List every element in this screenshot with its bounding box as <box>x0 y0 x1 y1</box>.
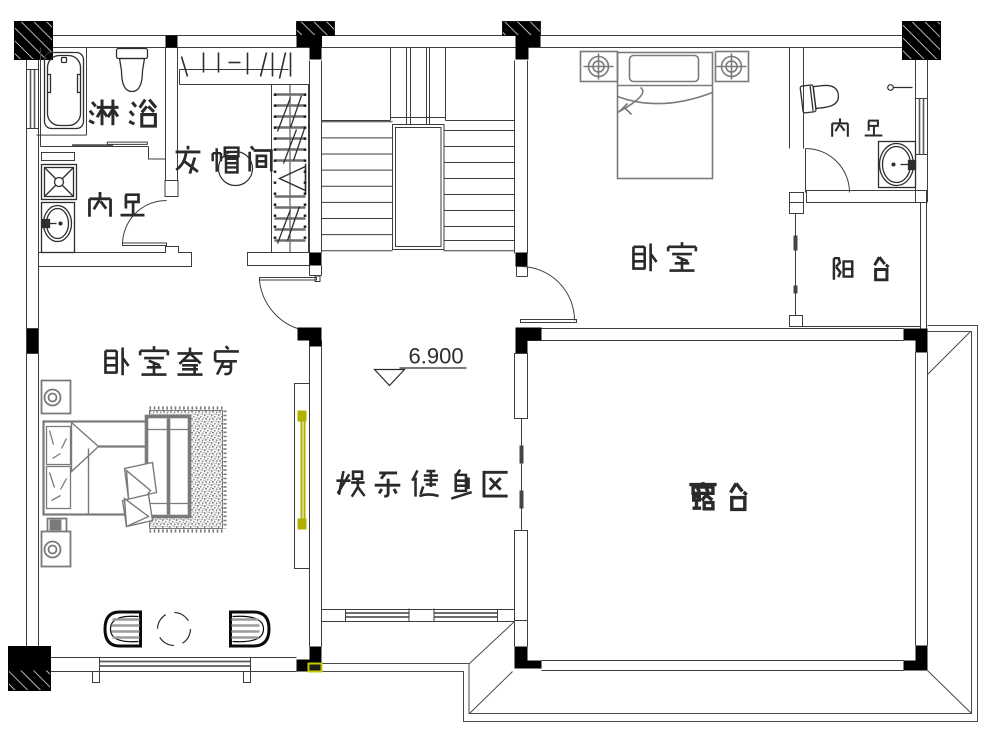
svg-text:6.900: 6.900 <box>409 344 464 369</box>
